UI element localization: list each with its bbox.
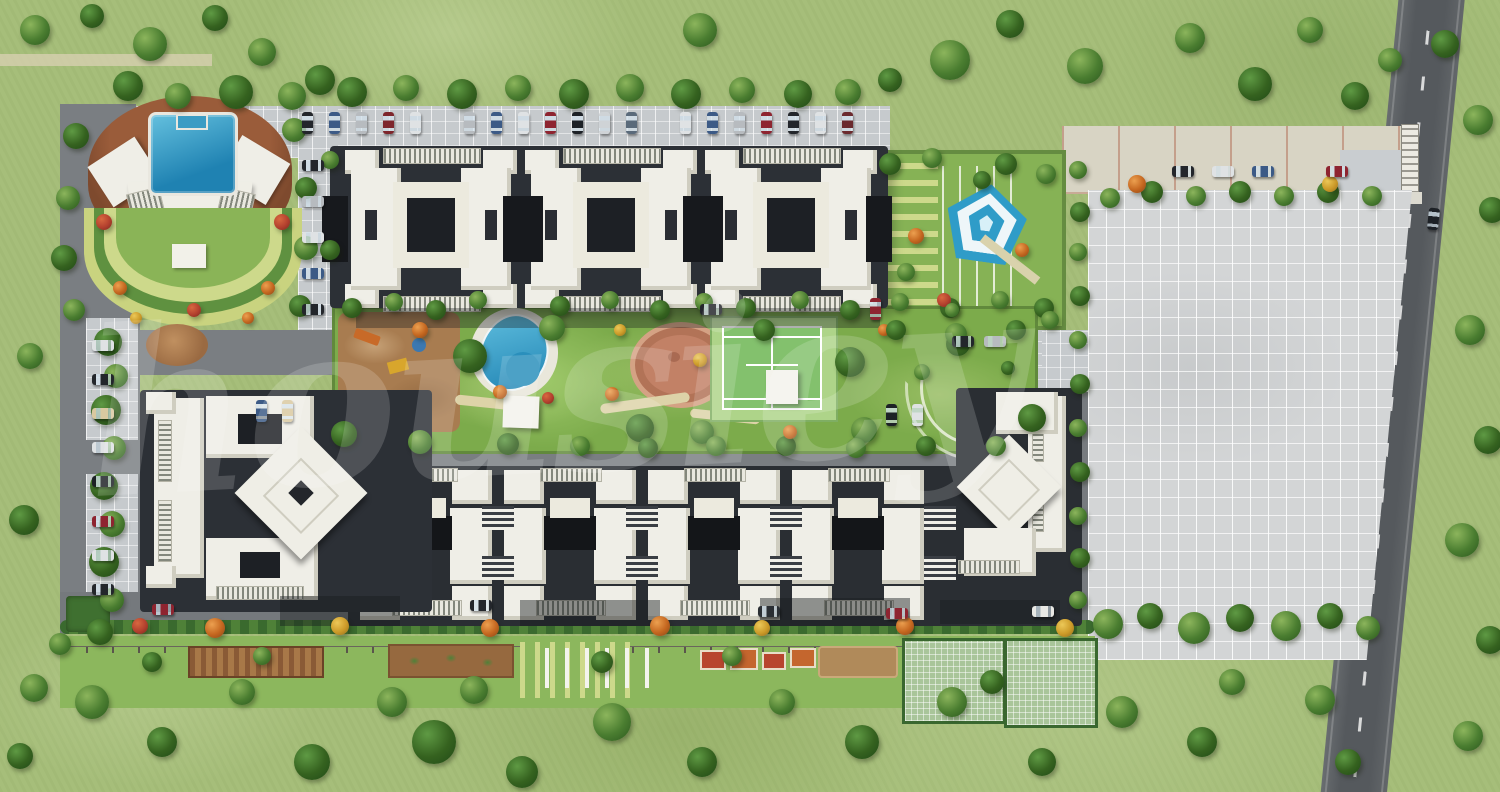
parked-car	[984, 336, 1006, 347]
parked-car	[788, 112, 799, 134]
parked-car	[92, 374, 114, 385]
parked-car	[92, 442, 114, 453]
parked-car	[383, 112, 394, 134]
parked-car	[491, 112, 502, 134]
parked-car	[1032, 606, 1054, 617]
parked-car	[470, 600, 492, 611]
parked-car	[302, 268, 324, 279]
parked-car	[599, 112, 610, 134]
parked-car	[1427, 207, 1440, 230]
parked-car	[886, 404, 897, 426]
parked-car	[282, 400, 293, 422]
parked-car	[329, 112, 340, 134]
parked-car	[1172, 166, 1194, 177]
parked-car	[302, 304, 324, 315]
parked-car	[626, 112, 637, 134]
parked-car	[302, 160, 324, 171]
parked-car	[92, 408, 114, 419]
cars-layer	[0, 0, 1500, 792]
parked-car	[842, 112, 853, 134]
parked-car	[152, 604, 174, 615]
site-plan-render: housiey	[0, 0, 1500, 792]
parked-car	[92, 550, 114, 561]
parked-car	[952, 336, 974, 347]
parked-car	[302, 196, 324, 207]
parked-car	[256, 400, 267, 422]
parked-car	[1212, 166, 1234, 177]
parked-car	[464, 112, 475, 134]
parked-car	[572, 112, 583, 134]
parked-car	[302, 112, 313, 134]
parked-car	[912, 404, 923, 426]
parked-car	[356, 112, 367, 134]
parked-car	[734, 112, 745, 134]
parked-car	[680, 112, 691, 134]
parked-car	[707, 112, 718, 134]
parked-car	[92, 340, 114, 351]
parked-car	[410, 112, 421, 134]
parked-car	[518, 112, 529, 134]
parked-car	[886, 608, 908, 619]
parked-car	[870, 298, 881, 320]
parked-car	[92, 584, 114, 595]
parked-car	[92, 476, 114, 487]
parked-car	[545, 112, 556, 134]
parked-car	[92, 516, 114, 527]
parked-car	[761, 112, 772, 134]
parked-car	[758, 606, 780, 617]
parked-car	[815, 112, 826, 134]
parked-car	[302, 232, 324, 243]
parked-car	[1252, 166, 1274, 177]
parked-car	[700, 304, 722, 315]
parked-car	[1326, 166, 1348, 177]
